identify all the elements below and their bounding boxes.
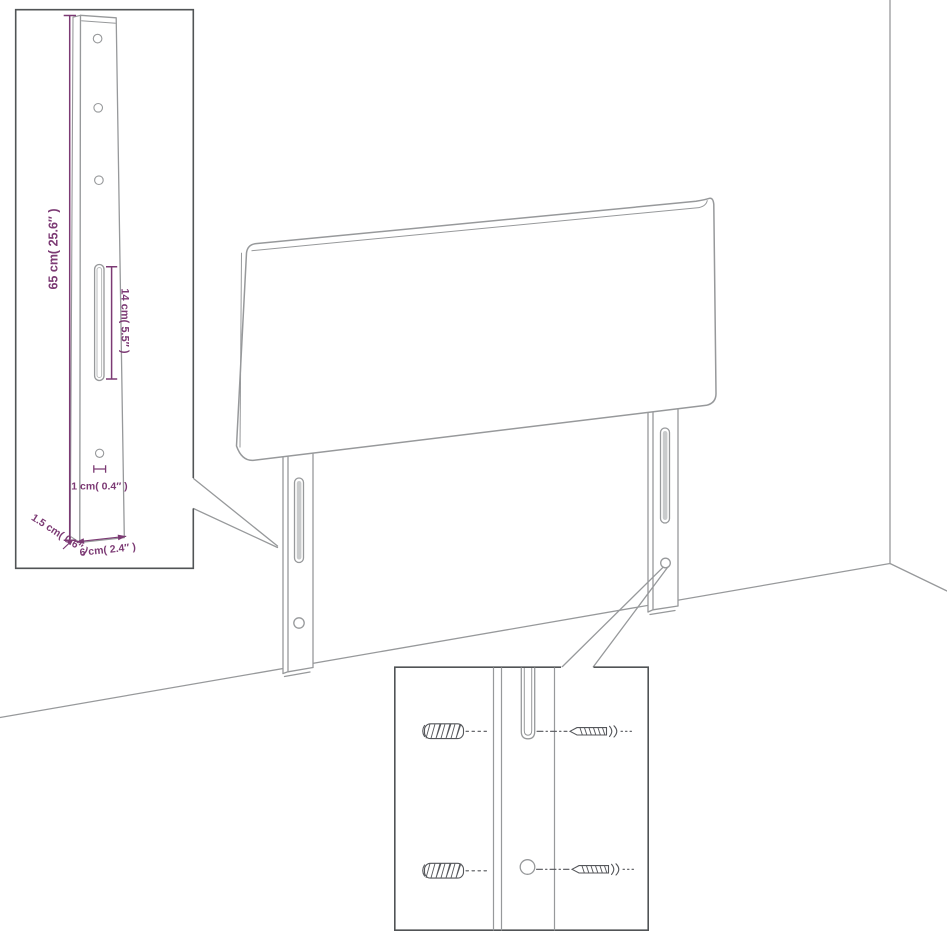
post-screw-hole-2 <box>94 104 103 113</box>
strip-screw-hole <box>520 860 535 875</box>
left-wedge-lower-line <box>194 509 278 548</box>
hole-dimension-label: 1 cm( 0.4″ ) <box>71 481 127 493</box>
screw-bottom-shaft <box>572 866 609 873</box>
post-screw-hole-3 <box>95 176 104 185</box>
headboard-dimension-diagram: 65 cm( 25.6″ ) 14 cm( 5.5″ ) 1 cm( 0.4″ … <box>0 0 947 947</box>
post-screw-hole-1 <box>93 34 102 43</box>
mounting-detail-inset <box>395 667 648 930</box>
post-detail-inset: 65 cm( 25.6″ ) 14 cm( 5.5″ ) 1 cm( 0.4″ … <box>16 10 194 569</box>
width-arrowhead-right <box>118 535 127 541</box>
right-wedge-right-line <box>593 568 667 668</box>
callout-wedge-left <box>194 479 278 548</box>
headboard-right-leg <box>648 410 678 615</box>
post-slot <box>95 265 104 381</box>
width-dimension-label: 6 cm( 2.4″ ) <box>79 541 136 559</box>
post-small-hole <box>96 449 104 457</box>
right-leg-screw-hole <box>661 558 671 568</box>
left-leg-screw-hole <box>294 618 304 628</box>
left-leg-slot-core <box>297 481 302 560</box>
screw-top-shaft <box>570 728 607 735</box>
right-leg-slot-core <box>663 431 668 520</box>
floor-line-right <box>890 564 947 592</box>
panel-front-face <box>237 198 717 460</box>
left-wedge-upper-line <box>194 479 278 547</box>
headboard-left-leg <box>283 454 313 677</box>
post-side-face <box>70 15 80 542</box>
diagram-canvas: 65 cm( 25.6″ ) 14 cm( 5.5″ ) 1 cm( 0.4″ … <box>0 0 947 947</box>
slot-dimension-label: 14 cm( 5.5″ ) <box>119 288 131 354</box>
headboard-panel <box>237 198 717 460</box>
height-dimension-label: 65 cm( 25.6″ ) <box>47 208 61 289</box>
